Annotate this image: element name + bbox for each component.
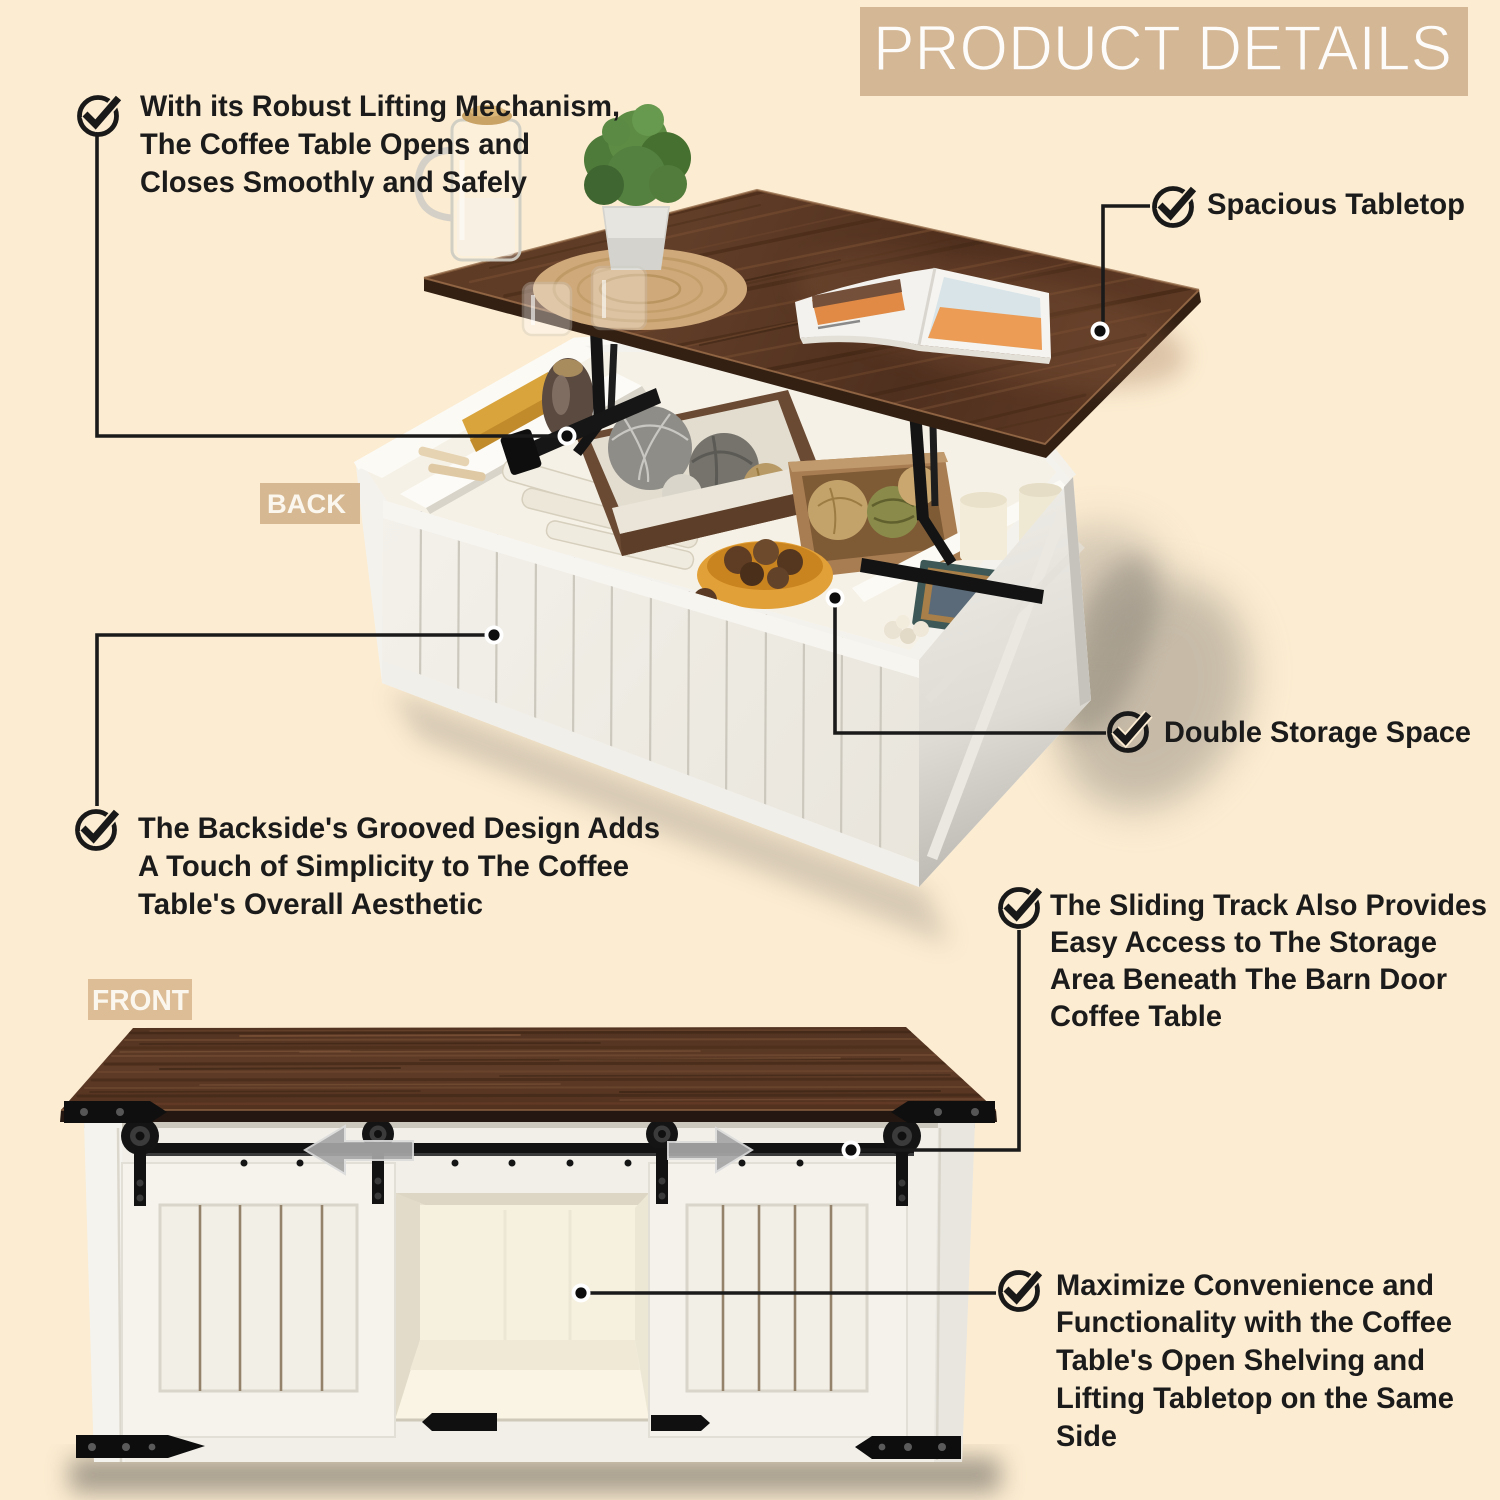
svg-text:BACK: BACK <box>267 489 347 519</box>
svg-text:FRONT: FRONT <box>92 985 189 1017</box>
svg-text:Easy Access to The Storage: Easy Access to The Storage <box>1050 926 1437 959</box>
svg-text:Area Beneath The Barn Door: Area Beneath The Barn Door <box>1050 963 1447 996</box>
svg-text:Side: Side <box>1056 1420 1117 1453</box>
svg-text:With its Robust Lifting Mechan: With its Robust Lifting Mechanism, <box>140 90 620 123</box>
svg-text:The Backside's Grooved Design: The Backside's Grooved Design Adds <box>138 812 660 845</box>
svg-text:Spacious Tabletop: Spacious Tabletop <box>1207 188 1465 221</box>
svg-text:Functionality with the Coffee: Functionality with the Coffee <box>1056 1306 1452 1339</box>
svg-text:Coffee Table: Coffee Table <box>1050 1000 1222 1033</box>
svg-text:Maximize Convenience and: Maximize Convenience and <box>1056 1269 1434 1302</box>
svg-text:A Touch of Simplicity to The C: A Touch of Simplicity to The Coffee <box>138 850 629 883</box>
svg-text:Table's Open Shelving and: Table's Open Shelving and <box>1056 1344 1425 1377</box>
svg-text:Double Storage Space: Double Storage Space <box>1164 716 1471 749</box>
svg-text:PRODUCT DETAILS: PRODUCT DETAILS <box>873 12 1452 84</box>
svg-text:Table's Overall Aesthetic: Table's Overall Aesthetic <box>138 888 483 921</box>
svg-text:Lifting Tabletop on the Same: Lifting Tabletop on the Same <box>1056 1382 1454 1415</box>
svg-text:Closes Smoothly and Safely: Closes Smoothly and Safely <box>140 166 527 199</box>
svg-text:The Sliding Track Also Provide: The Sliding Track Also Provides <box>1050 889 1487 922</box>
svg-text:The Coffee Table Opens and: The Coffee Table Opens and <box>140 128 530 161</box>
